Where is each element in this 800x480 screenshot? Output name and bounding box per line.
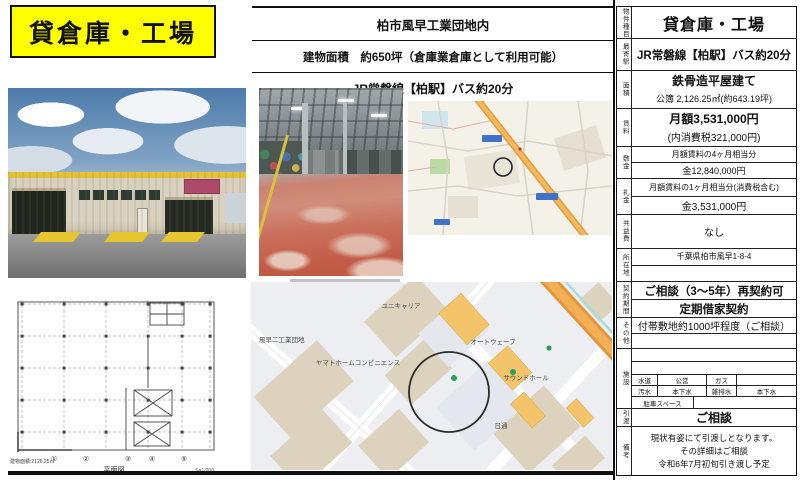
table-row-address: 所在地 千葉県柏市風早1-8-4	[617, 249, 796, 282]
table-row-rent: 賃料 月額3,531,000円 (内消費税321,000円)	[617, 109, 796, 147]
property-spec-table: 物件種目 貸倉庫・工場 最寄駅 JR常磐線【柏駅】バス約20分 面積 鉄骨造平屋…	[616, 6, 797, 476]
table-row-remarks: 備考 現状有姿にて引渡しとなります。 その詳細はご相談 令和6年7月初旬引き渡し…	[617, 427, 796, 475]
table-row-contract-term: 契約期間 ご相談（3〜5年）再契約可 定期借家契約	[617, 282, 796, 318]
table-row-area: 面積 鉄骨造平屋建て 公簿 2,126.25㎡(約643.19坪)	[617, 71, 796, 109]
header-building-area: 建物面積 約650坪（倉庫業倉庫として利用可能）	[252, 41, 614, 73]
table-row-other: その他 付帯敷地約1000坪程度（ご相談）	[617, 318, 796, 349]
floor-plan: ① ② ③ ④ ⑤ 建物面積:2126.25㎡ 平面図 S=1/200	[2, 290, 230, 478]
detail-map: ユニキャリア 風早二工業団地 ヤマトホームコンビニエンス オートウェーブ サウン…	[251, 282, 612, 470]
warehouse-building	[8, 172, 246, 235]
map-label-autowave: オートウェーブ	[470, 337, 516, 346]
map-label-soundhall: サウンドホール	[503, 374, 549, 382]
exterior-photo	[8, 88, 246, 278]
svg-text:⑤: ⑤	[181, 455, 187, 463]
table-row-facilities: 施設 水道 公営 ガス 汚水 本下水 雑排水 本下水	[617, 349, 796, 409]
map-label-nittsu: 日通	[495, 421, 509, 430]
wide-area-map	[408, 101, 612, 235]
table-row-key-money: 礼金 月額賃料の1ヶ月相当分(消費税含む) 金3,531,000円	[617, 179, 796, 215]
table-row-deposit: 敷金 月額賃料の4ヶ月相当分 金12,840,000円	[617, 147, 796, 179]
svg-text:②: ②	[83, 455, 89, 463]
table-row-station: 最寄駅 JR常磐線【柏駅】バス約20分	[617, 39, 796, 71]
map-label-danchi: 風早二工業団地	[259, 335, 305, 344]
interior-photo	[259, 88, 403, 276]
painted-floor	[259, 174, 403, 276]
property-flyer-page: 貸倉庫・工場 柏市風早工業団地内 建物面積 約650坪（倉庫業倉庫として利用可能…	[0, 0, 800, 480]
header-location: 柏市風早工業団地内	[252, 8, 614, 41]
sheet-bottom-rule	[8, 471, 614, 475]
map-label-yamato: ヤマトホームコンビニエンス	[316, 358, 400, 367]
table-row-handover: 引渡 ご相談	[617, 409, 796, 427]
table-row-common-fee: 共益費 なし	[617, 215, 796, 249]
svg-text:④: ④	[149, 455, 155, 463]
facilities-subtable: 水道 公営 ガス 汚水 本下水 雑排水 本下水 駐車スペース	[632, 374, 796, 408]
content-table-divider	[613, 0, 615, 480]
map-label-unicarrier: ユニキャリア	[382, 302, 422, 310]
table-row-property-type: 物件種目 貸倉庫・工場	[617, 7, 796, 39]
flyer-title-box: 貸倉庫・工場	[10, 5, 216, 58]
flyer-title: 貸倉庫・工場	[29, 14, 197, 50]
svg-text:③: ③	[125, 455, 131, 463]
floorplan-area-note: 建物面積:2126.25㎡	[10, 458, 54, 465]
